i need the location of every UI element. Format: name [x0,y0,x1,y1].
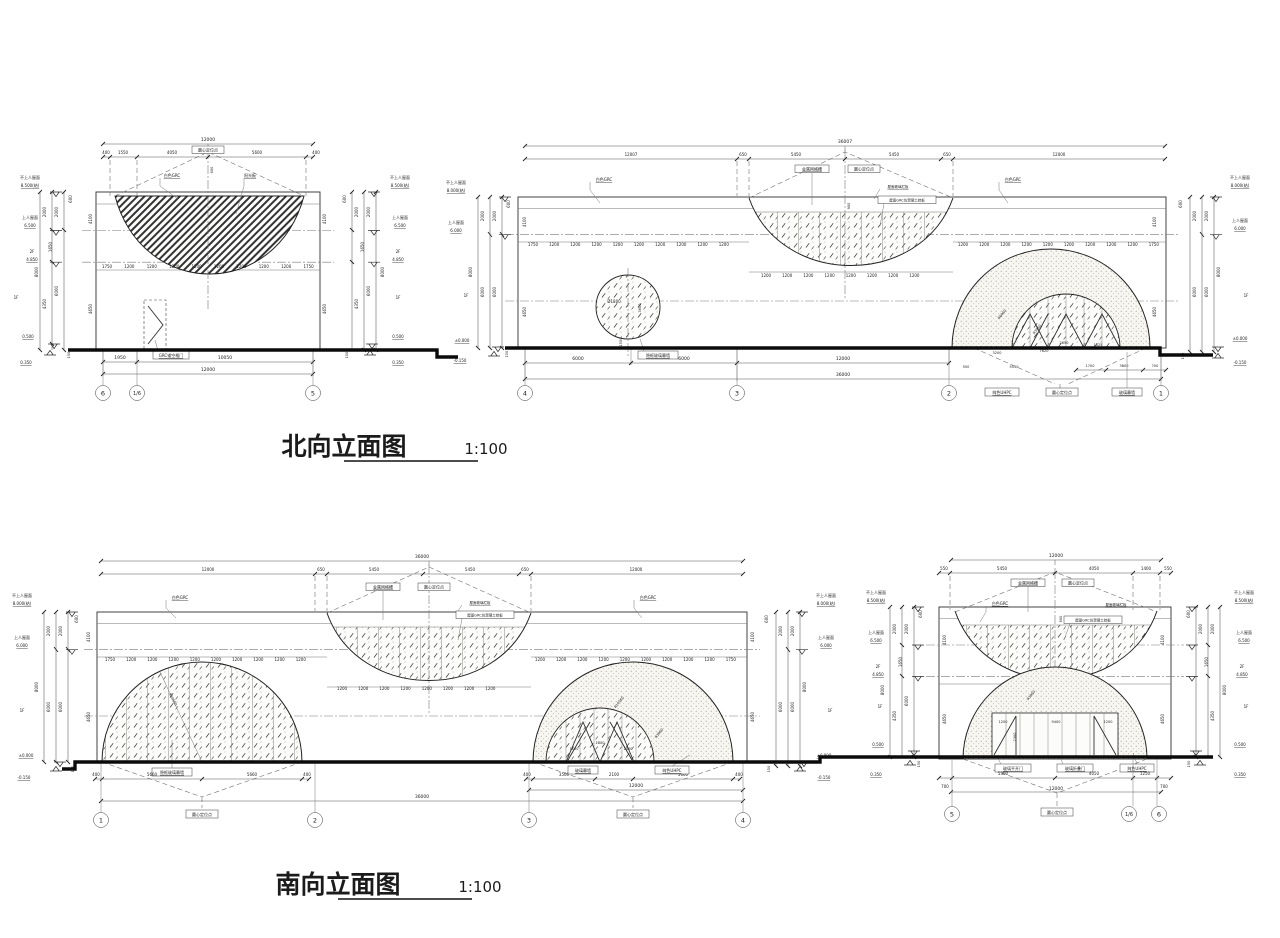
svg-text:圆心定位点: 圆心定位点 [1068,580,1088,586]
dim-text: 3200 [993,351,1002,355]
svg-text:150: 150 [345,352,349,359]
svg-text:1: 1 [1159,390,1163,398]
dim-text: 36007 [838,139,852,145]
svg-text:上人屋面: 上人屋面 [392,214,408,220]
svg-text:1F: 1F [828,708,834,713]
svg-text:4650: 4650 [1160,713,1165,724]
svg-text:金属网格栅: 金属网格栅 [802,166,822,172]
title-south: 南向立面图 1:100 [275,870,501,899]
dim-text: 12000 [1049,553,1063,559]
svg-text:2000: 2000 [1204,210,1209,221]
svg-text:4650: 4650 [1152,306,1157,317]
dim-text: 4050 [167,150,178,155]
svg-text:8.500(结): 8.500(结) [21,182,40,188]
dim-text: 1100 [570,747,579,751]
material-label: 屋面玻璃栏板 [470,600,491,605]
drawing-scale: 1:100 [458,878,501,896]
level-ladder-right: 不上人屋面 8.000(结) 上人屋面 6.000 1F ±0.000 -0.1… [1152,174,1250,365]
svg-text:2F: 2F [876,664,882,669]
svg-text:6.500: 6.500 [394,223,406,228]
level-ladder-left: 不上人屋面 8.000(结) 上人屋面 6.000 1F ±0.000 -0.1… [446,179,527,363]
dim-text-band: 1200 [147,264,158,269]
svg-text:8.500(结): 8.500(结) [867,597,886,603]
label-center-point: 圆心定位点 [848,165,880,173]
svg-text:0.500: 0.500 [1234,742,1246,747]
svg-text:上人屋面: 上人屋面 [818,634,834,640]
dim-text-band: 1750 [726,657,737,662]
glass-bowl-canopy [749,197,953,293]
dim-text-band: 1200 [655,242,666,247]
svg-text:金属网格栅: 金属网格栅 [373,584,393,590]
svg-text:0.500: 0.500 [22,334,34,339]
dim-text: 5450 [889,152,900,157]
svg-text:4650: 4650 [942,713,947,724]
svg-text:2F: 2F [30,249,36,254]
dim-text: 1250 [1140,771,1151,776]
dim-text-band: 1200 [1022,242,1033,247]
dim-text-band: 1200 [577,657,588,662]
svg-text:6.000: 6.000 [16,643,28,648]
svg-text:150: 150 [67,352,71,359]
title-north: 北向立面图 1:100 [281,432,507,461]
svg-text:0.500: 0.500 [392,334,404,339]
svg-text:4650: 4650 [322,303,327,314]
svg-text:1F: 1F [20,708,26,713]
svg-text:4100: 4100 [1152,216,1157,227]
level-ladder-left: 不上人屋面 8.500(结) 上人屋面 6.500 2F 4.850 1F 0.… [866,589,947,777]
elevation-north-small: 12000 400 1550 4050 5600 400 600 白色GRC 阳… [14,137,410,401]
dim-text: 1400 [624,747,633,751]
svg-text:1F: 1F [464,293,470,298]
grid-bubble: 6 [96,386,111,401]
dim-text-band: 1750 [528,242,539,247]
svg-text:1650: 1650 [48,241,53,252]
svg-text:6000: 6000 [54,285,59,296]
dim-text-band: 1200 [190,657,201,662]
dim-text-band: 1200 [683,657,694,662]
svg-text:纯色UHPC: 纯色UHPC [662,767,681,773]
grid-bubble: 5 [945,807,960,822]
svg-text:0.350: 0.350 [870,772,882,777]
svg-text:6000: 6000 [46,701,51,712]
glass-dome [102,662,302,762]
dim-text: 36000 [415,794,429,800]
svg-text:圆心定位点: 圆心定位点 [198,147,218,153]
dim-text-band: 1200 [634,242,645,247]
svg-text:600: 600 [74,615,79,623]
dim-text: 12000 [1053,152,1066,157]
dim-text: 700 [941,784,949,789]
svg-text:600: 600 [918,610,923,618]
svg-text:2000: 2000 [480,210,485,221]
svg-text:6: 6 [1157,811,1161,819]
dim-text-band: 1200 [846,273,857,278]
dim-text-band: 1200 [379,686,390,691]
dim-text-band: 1750 [304,264,315,269]
svg-text:2F: 2F [396,249,402,254]
svg-text:6: 6 [101,390,105,398]
dim-text-band: 1750 [1149,242,1160,247]
svg-text:2000: 2000 [46,625,51,636]
svg-text:玻璃幕墙: 玻璃幕墙 [575,767,591,773]
dim-text: 5450 [791,152,802,157]
svg-text:6000: 6000 [904,695,909,706]
svg-text:6000: 6000 [492,286,497,297]
grid-bubble: 3 [522,813,537,828]
svg-text:6.500: 6.500 [870,638,882,643]
svg-text:不上人屋面: 不上人屋面 [1234,589,1254,595]
svg-text:150: 150 [767,766,771,773]
svg-text:圆心定位点: 圆心定位点 [424,584,444,590]
dim-text-band: 1200 [1128,242,1139,247]
dim-text-band: 1200 [1106,242,1117,247]
svg-text:4: 4 [741,817,745,825]
dim-text: 650 [317,567,325,572]
svg-text:150: 150 [1187,761,1191,768]
svg-text:150: 150 [917,761,921,768]
dim-text-band: 1200 [909,273,920,278]
svg-text:6000: 6000 [778,701,783,712]
label-glass-wall: 玻璃幕墙 [1112,352,1142,396]
svg-text:8.000(结): 8.000(结) [13,600,32,606]
grid-bubble: 5 [306,386,321,401]
level-ladder-right: 不上人屋面 8.500(结) 上人屋面 6.500 2F 4.850 1F 0.… [322,174,410,365]
dim-text-band: 1200 [592,242,603,247]
svg-text:1/6: 1/6 [1125,812,1133,818]
dim-text-vertical: 600 [1059,616,1063,623]
label-leader [634,600,642,618]
dim-text-band: 1200 [358,686,369,691]
material-label: 白色GRC [172,594,189,600]
dim-text-band: 1200 [1085,242,1096,247]
grid-bubble: 4 [518,386,533,401]
dim-text: 5600 [252,150,263,155]
dim-text: 550 [940,566,948,571]
door-chevron [148,306,163,344]
material-label: 白色GRC [1005,176,1022,182]
svg-text:4650: 4650 [750,711,755,722]
svg-text:不上人屋面: 不上人屋面 [866,589,886,595]
svg-text:1F: 1F [1244,293,1250,298]
svg-text:1650: 1650 [360,241,365,252]
svg-text:600: 600 [342,195,347,203]
svg-text:8000: 8000 [468,266,473,277]
svg-text:8000: 8000 [380,266,385,277]
level-ladder-right: 不上人屋面 8.000(结) 上人屋面 6.000 1F ±0.000 -0.1… [750,592,836,780]
svg-text:4.850: 4.850 [392,257,404,262]
grid-bubble: 3 [730,386,745,401]
svg-text:4350: 4350 [1210,710,1215,721]
dim-text: 700 [1160,784,1168,789]
svg-text:屋面GRC仿混凝土挂板: 屋面GRC仿混凝土挂板 [467,613,503,618]
label-center-point: 圆心定位点 [617,810,649,818]
svg-text:1F: 1F [14,295,20,300]
svg-text:1F: 1F [1244,704,1250,709]
svg-text:2000: 2000 [58,625,63,636]
dim-text-band: 1200 [253,657,264,662]
svg-text:4100: 4100 [942,634,947,645]
dim-text-vertical: 3600 [638,304,642,313]
svg-text:不上人屋面: 不上人屋面 [446,179,466,185]
grid-bubble: 1 [94,813,109,828]
svg-text:-0.150: -0.150 [454,358,467,363]
dim-text: 650 [521,567,529,572]
svg-text:8.000(结): 8.000(结) [1231,182,1250,188]
dim-text-band: 1200 [485,686,496,691]
svg-text:600: 600 [1178,200,1183,208]
svg-text:8.500(结): 8.500(结) [1235,597,1254,603]
dim-text-band: 1200 [124,264,135,269]
dim-text-band: 1200 [337,686,348,691]
svg-text:上人屋面: 上人屋面 [448,219,464,225]
svg-text:4350: 4350 [42,298,47,309]
svg-text:5: 5 [311,390,315,398]
svg-text:6000: 6000 [790,701,795,712]
dim-text-band: 1200 [147,657,158,662]
svg-text:4.850: 4.850 [26,257,38,262]
svg-text:6.500: 6.500 [24,223,36,228]
grid-bubble: 2 [942,386,957,401]
svg-text:屋面GRC仿混凝土挂板: 屋面GRC仿混凝土挂板 [1075,618,1111,623]
label-center-point: 圆心定位点 [1046,388,1078,396]
svg-text:2: 2 [313,817,317,825]
svg-text:纯色UHPC: 纯色UHPC [992,389,1011,395]
svg-text:金属网格栅: 金属网格栅 [1018,580,1038,586]
dome-apex-guides [963,759,1147,806]
level-ladder-right: 不上人屋面 8.500(结) 上人屋面 6.500 2F 4.850 1F 0.… [1160,589,1254,777]
material-label: 白色GRC [164,172,181,178]
svg-text:上人屋面: 上人屋面 [14,634,30,640]
svg-text:4350: 4350 [354,298,359,309]
svg-text:6.000: 6.000 [820,643,832,648]
svg-text:4100: 4100 [322,213,327,224]
svg-text:-0.150: -0.150 [1234,360,1247,365]
svg-text:2000: 2000 [492,210,497,221]
svg-text:8000: 8000 [802,681,807,692]
dim-text-band: 1200 [888,273,899,278]
svg-text:1: 1 [99,817,103,825]
dim-text: 1700 [1086,364,1095,368]
svg-text:1/6: 1/6 [133,391,141,397]
svg-text:2000: 2000 [904,623,909,634]
svg-text:圆心定位点: 圆心定位点 [192,811,212,817]
label-center-point: 圆心定位点 [1041,808,1073,816]
material-label: 屋面玻璃栏板 [1106,602,1127,607]
grid-bubble: 1 [1154,386,1169,401]
dim-text: 12000 [201,367,215,373]
dim-text: 36000 [836,372,850,378]
dim-text-band: 1200 [698,242,709,247]
dim-text: 36000 [415,554,429,560]
drawing-title: 北向立面图 [281,432,406,461]
svg-text:4350: 4350 [892,710,897,721]
dim-text-band: 1200 [549,242,560,247]
elevation-drawing-canvas: 12000 400 1550 4050 5600 400 600 白色GRC 阳… [0,0,1280,934]
svg-text:6.000: 6.000 [1234,226,1246,231]
svg-text:6.500: 6.500 [1238,638,1250,643]
dim-text-band: 1200 [867,273,878,278]
svg-text:圆心定位点: 圆心定位点 [1052,389,1072,395]
dim-text-band: 1200 [169,657,180,662]
dim-text: 5660 [147,772,158,777]
dim-text: 5450 [997,566,1008,571]
dim-text-band: 1200 [401,686,412,691]
svg-text:圆心定位点: 圆心定位点 [623,811,643,817]
dim-text: 550 [1164,566,1172,571]
svg-text:玻璃折叠门: 玻璃折叠门 [1065,765,1085,771]
dim-text-band: 1200 [613,242,624,247]
dim-text: 650 [943,152,951,157]
svg-text:-0.150: -0.150 [18,775,31,780]
dim-text: 5450 [369,567,380,572]
dim-text: 12000 [201,137,215,143]
dim-text: 12000 [202,567,215,572]
dim-text-band: 1200 [556,657,567,662]
svg-text:4100: 4100 [88,213,93,224]
svg-text:150: 150 [505,351,509,358]
svg-text:圆心定位点: 圆心定位点 [854,166,874,172]
svg-text:8000: 8000 [34,681,39,692]
svg-text:2000: 2000 [54,206,59,217]
svg-text:2000: 2000 [790,625,795,636]
svg-text:GRC镂空格门: GRC镂空格门 [159,352,183,358]
dim-text: Ø1800 [607,299,621,304]
svg-text:上人屋面: 上人屋面 [1236,629,1252,635]
svg-text:1F: 1F [396,295,402,300]
dim-text-band: 1200 [620,657,631,662]
label-glass-wall: 玻璃幕墙 [568,766,598,774]
grid-bubble: 6 [1152,807,1167,822]
dim-text-band: 1200 [259,264,270,269]
svg-text:不上人屋面: 不上人屋面 [390,174,410,180]
svg-text:屋面GRC仿混凝土挂板: 屋面GRC仿混凝土挂板 [889,198,925,203]
svg-text:4650: 4650 [86,711,91,722]
svg-text:0.350: 0.350 [1234,772,1246,777]
svg-text:4100: 4100 [522,216,527,227]
svg-text:不上人屋面: 不上人屋面 [20,174,40,180]
dim-text-band: 1200 [641,657,652,662]
dim-text: 9400 [1052,720,1061,724]
dim-text: 1200 [1104,720,1113,724]
svg-text:4100: 4100 [1160,634,1165,645]
svg-text:8000: 8000 [1222,684,1227,695]
dim-text-band: 1200 [599,657,610,662]
svg-text:8.500(结): 8.500(结) [391,182,410,188]
grid-bubble: 1/6 [1122,807,1137,822]
dim-text: 2650 [1060,341,1069,345]
dim-text-band: 1200 [676,242,687,247]
svg-text:8000: 8000 [34,266,39,277]
svg-text:2000: 2000 [1210,623,1215,634]
svg-text:0.350: 0.350 [392,360,404,365]
dim-text-band: 1750 [102,264,113,269]
svg-text:8.000(结): 8.000(结) [447,187,466,193]
dim-text: 12007 [625,152,638,157]
svg-text:不上人屋面: 不上人屋面 [12,592,32,598]
svg-text:600: 600 [764,615,769,623]
dim-text-band: 1200 [214,264,225,269]
dim-text-band: 1200 [958,242,969,247]
svg-text:2000: 2000 [366,206,371,217]
dim-text-band: 1200 [281,264,292,269]
svg-text:5: 5 [950,811,954,819]
drawing-scale: 1:100 [464,440,507,458]
svg-text:玻璃幕墙: 玻璃幕墙 [1119,389,1135,395]
dim-text-band: 1200 [979,242,990,247]
label-center-point: 圆心定位点 [192,146,224,154]
dim-text-band: 1200 [761,273,772,278]
elevation-south-small: 600 R3960 1200 2300 9400 1200 金属网格栅 圆心定位… [866,553,1254,822]
dim-text: 6000 [572,356,584,362]
dim-text: 5450 [465,567,476,572]
dim-text-band: 1200 [825,273,836,278]
svg-text:3: 3 [735,390,739,398]
svg-text:6.000: 6.000 [450,228,462,233]
dim-text: 12000 [836,356,850,362]
dim-text-band: 1200 [296,657,307,662]
dim-text: 400 [102,150,110,155]
svg-text:4: 4 [523,390,527,398]
dim-text: 12000 [629,783,643,789]
svg-text:2000: 2000 [354,206,359,217]
label-leader [590,182,600,203]
uhpc-dome [963,667,1147,759]
dim-text-band: 1200 [464,686,475,691]
level-ladder-left: 不上人屋面 8.000(结) 上人屋面 6.000 1F ±0.000 -0.1… [12,592,91,780]
label-uhpc: 纯色UHPC [985,388,1019,396]
svg-text:6000: 6000 [58,701,63,712]
label-center-point: 圆心定位点 [186,810,218,818]
dim-text-band: 1200 [232,657,243,662]
dim-text-vertical: 600 [210,167,214,174]
svg-text:4100: 4100 [86,631,91,642]
svg-text:8.000(结): 8.000(结) [817,600,836,606]
dim-text-band: 1200 [782,273,793,278]
ground-line-north-small [68,350,458,357]
ground-line-north-main [505,348,1213,355]
svg-text:1650: 1650 [898,656,903,667]
material-label: 白色GRC [640,594,657,600]
label-leader [999,182,1008,203]
dim-text-band: 1200 [236,264,247,269]
dim-text-vertical: 2300 [1013,733,1017,742]
svg-text:2F: 2F [1240,664,1246,669]
svg-text:6000: 6000 [1204,286,1209,297]
elevation-north-main: 900 Ø1800 3600 1500 隐框玻璃幕墙 R6960 R3960 3… [446,139,1250,401]
dim-text: 12000 [630,567,643,572]
svg-text:2000: 2000 [778,625,783,636]
svg-text:2000: 2000 [42,206,47,217]
level-ladder-left: 不上人屋面 8.500(结) 上人屋面 6.500 2F 4.850 1F 0.… [14,174,93,365]
grid-axis-lines [101,762,743,812]
svg-text:3: 3 [527,817,531,825]
svg-text:8000: 8000 [1216,266,1221,277]
material-label: 屋面玻璃栏板 [888,184,909,189]
svg-text:600: 600 [506,200,511,208]
dim-text-band: 1200 [570,242,581,247]
dim-text-band: 1200 [443,686,454,691]
svg-text:0.500: 0.500 [872,742,884,747]
elevation-south-main: R10560 隐框玻璃幕墙 R10560 R3960 1100 1800 140… [12,554,836,828]
dim-text: 1800 [596,741,605,745]
dim-text: 5300 [998,771,1009,776]
svg-text:4100: 4100 [750,631,755,642]
dim-text: 400 [523,772,531,777]
dim-text: 400 [303,772,311,777]
svg-text:4.850: 4.850 [1236,672,1248,677]
svg-text:4650: 4650 [522,306,527,317]
dim-text-band: 1200 [1000,242,1011,247]
